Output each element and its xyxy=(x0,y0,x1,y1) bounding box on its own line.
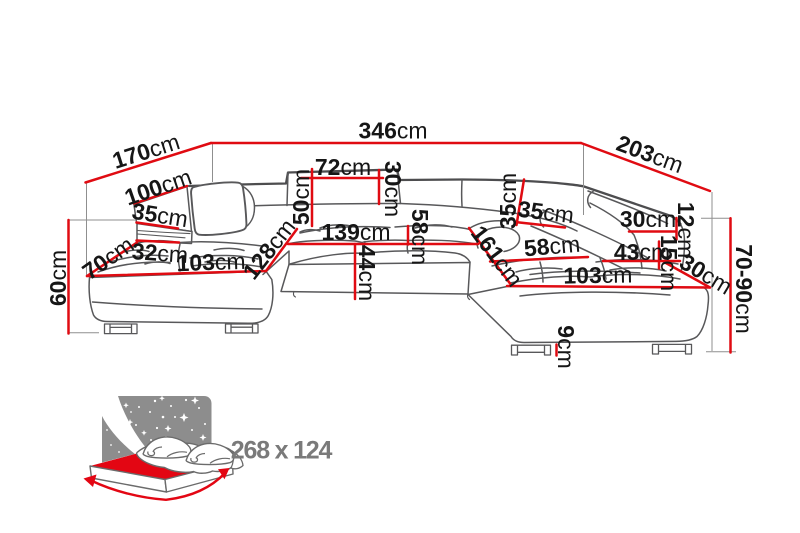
svg-text:58cm: 58cm xyxy=(407,209,433,265)
svg-text:30cm: 30cm xyxy=(380,161,406,217)
svg-text:44cm: 44cm xyxy=(354,245,380,301)
svg-text:103cm: 103cm xyxy=(176,248,246,276)
svg-text:60cm: 60cm xyxy=(45,250,71,306)
svg-text:30cm: 30cm xyxy=(620,206,676,232)
svg-text:70-90cm: 70-90cm xyxy=(731,244,757,334)
svg-text:103cm: 103cm xyxy=(563,261,632,288)
svg-text:9cm: 9cm xyxy=(553,325,579,368)
svg-text:346cm: 346cm xyxy=(358,118,427,144)
svg-text:268 x 124: 268 x 124 xyxy=(231,437,333,465)
svg-text:139cm: 139cm xyxy=(321,219,390,245)
svg-text:72cm: 72cm xyxy=(315,154,371,180)
svg-text:50cm: 50cm xyxy=(288,169,314,225)
svg-text:15cm: 15cm xyxy=(656,235,682,291)
svg-text:58cm: 58cm xyxy=(523,231,581,262)
